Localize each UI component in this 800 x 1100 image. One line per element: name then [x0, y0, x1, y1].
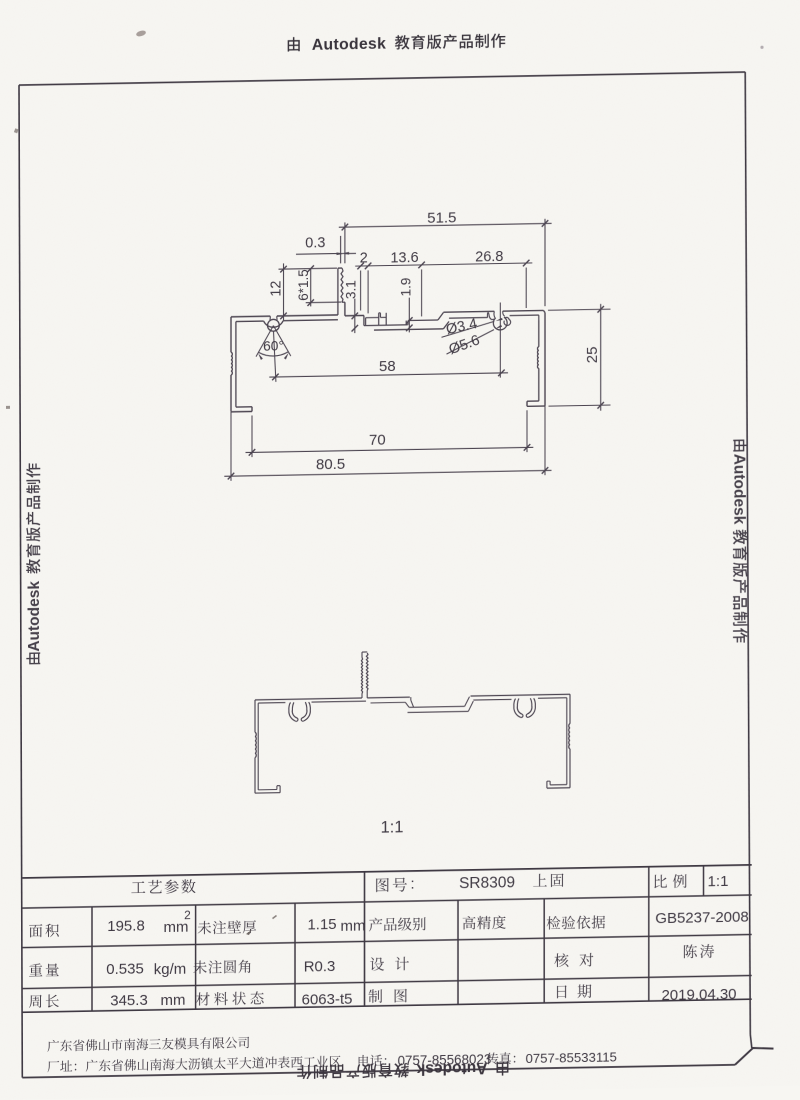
svg-text:2: 2 [184, 908, 191, 922]
svg-text:2019.04.30: 2019.04.30 [661, 986, 736, 1004]
svg-text:2: 2 [360, 250, 368, 266]
svg-text:1:1: 1:1 [381, 818, 404, 836]
svg-text:Autodesk: Autodesk [731, 454, 748, 525]
svg-text:GB5237-2008: GB5237-2008 [655, 908, 748, 927]
svg-text:6063-t5: 6063-t5 [302, 990, 353, 1008]
svg-text:6*1.5: 6*1.5 [296, 269, 311, 301]
svg-text:0.535: 0.535 [106, 961, 144, 979]
svg-text:26.8: 26.8 [475, 249, 503, 266]
svg-text:70: 70 [369, 431, 386, 448]
svg-text:25: 25 [584, 346, 601, 363]
svg-text:kg/m: kg/m [154, 960, 187, 978]
svg-text:13.6: 13.6 [390, 250, 418, 267]
svg-text:mm: mm [341, 917, 366, 934]
svg-text:0.3: 0.3 [305, 235, 325, 251]
svg-text:195.8: 195.8 [107, 917, 145, 935]
svg-text:SR8309: SR8309 [459, 874, 515, 892]
svg-text::: : [410, 876, 414, 893]
svg-text:1.15: 1.15 [307, 916, 336, 934]
svg-text:R0.3: R0.3 [304, 958, 336, 976]
svg-text:51.5: 51.5 [427, 209, 456, 227]
svg-text:Autodesk: Autodesk [416, 1059, 487, 1077]
svg-text:3.1: 3.1 [343, 280, 358, 299]
svg-text:60°: 60° [263, 338, 284, 353]
svg-text:1.9: 1.9 [398, 277, 413, 296]
svg-text:80.5: 80.5 [316, 456, 345, 474]
svg-text:mm: mm [161, 992, 186, 1009]
svg-text:Autodesk: Autodesk [312, 35, 386, 53]
svg-text:Autodesk: Autodesk [26, 581, 43, 652]
svg-text:1:1: 1:1 [708, 873, 729, 890]
svg-text:12: 12 [268, 280, 284, 296]
svg-text:345.3: 345.3 [110, 992, 148, 1010]
svg-text:0757-85533115: 0757-85533115 [526, 1049, 617, 1066]
svg-text:58: 58 [379, 358, 396, 375]
